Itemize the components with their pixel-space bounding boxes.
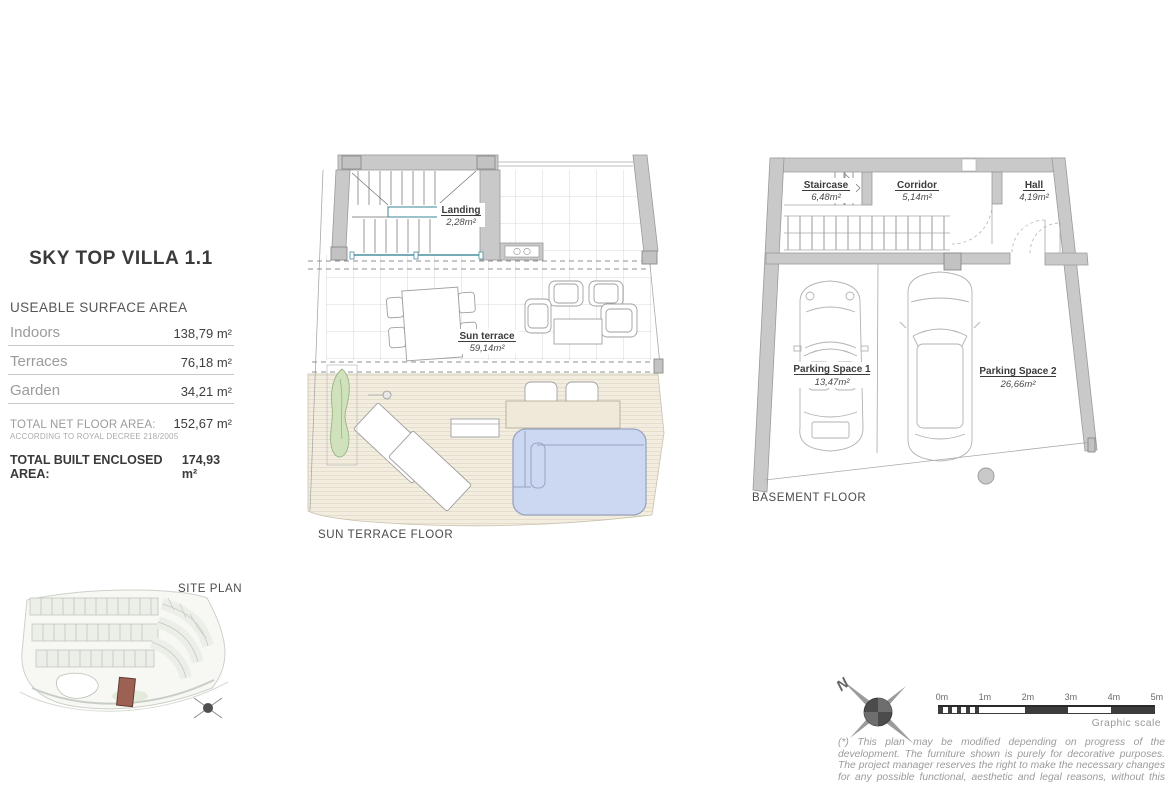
site-compass-icon	[194, 698, 222, 718]
svg-text:Hall: Hall	[1025, 180, 1044, 191]
stair-flight-band	[784, 216, 950, 250]
top-wall	[338, 155, 498, 170]
svg-text:59,14m²: 59,14m²	[470, 343, 506, 354]
surface-row-indoors: Indoors 138,79 m²	[8, 317, 234, 346]
row-value: 138,79 m²	[173, 326, 232, 341]
wall-opening	[962, 159, 976, 171]
sun-terrace-caption: SUN TERRACE FLOOR	[318, 529, 453, 541]
column	[978, 468, 994, 484]
car-suv	[900, 272, 980, 461]
housing-rows	[30, 598, 158, 667]
svg-text:13,47m²: 13,47m²	[815, 377, 851, 388]
info-panel: SKY TOP VILLA 1.1 USEABLE SURFACE AREA I…	[8, 248, 234, 481]
built-area-value: 174,93 m²	[182, 453, 232, 481]
coffee-table	[554, 319, 602, 344]
row-value: 76,18 m²	[181, 355, 232, 370]
svg-text:Staircase: Staircase	[804, 180, 849, 191]
scale-caption: Graphic scale	[1092, 717, 1161, 729]
pillar	[477, 156, 495, 169]
built-area-line: TOTAL BUILT ENCLOSED AREA: 174,93 m²	[10, 453, 232, 481]
room-label-staircase: Staircase 6,48m²	[796, 178, 856, 203]
row-label: Terraces	[10, 353, 68, 370]
pool	[513, 429, 646, 515]
top-railing	[498, 162, 634, 166]
pond	[56, 673, 98, 698]
scale-tick: 1m	[979, 692, 992, 702]
net-floor-area-line: TOTAL NET FLOOR AREA: 152,67 m²	[10, 416, 232, 431]
right-wall	[1052, 158, 1097, 451]
built-area-label: TOTAL BUILT ENCLOSED AREA:	[10, 453, 182, 481]
svg-text:26,66m²: 26,66m²	[1000, 379, 1037, 390]
driveway-edge	[765, 442, 1092, 480]
hall-wall	[992, 172, 1002, 204]
row-label: Indoors	[10, 324, 60, 341]
doors	[952, 204, 1060, 253]
room-label-sun-terrace: Sun terrace 59,14m²	[455, 329, 519, 354]
step	[451, 419, 499, 437]
pillar	[331, 247, 347, 260]
row-value: 34,21 m²	[181, 384, 232, 399]
svg-text:Landing: Landing	[442, 205, 481, 216]
scale-strip	[938, 705, 1155, 714]
pillar	[642, 251, 657, 264]
net-floor-area-label: TOTAL NET FLOOR AREA:	[10, 419, 156, 431]
pillar	[654, 359, 663, 373]
parking-divider	[877, 264, 878, 453]
left-wall	[753, 158, 784, 492]
page-title: SKY TOP VILLA 1.1	[8, 248, 234, 270]
royal-decree-note: ACCORDING TO ROYAL DECREE 218/2005	[10, 432, 232, 441]
outdoor-counter	[506, 401, 620, 428]
scale-segment	[982, 707, 1025, 713]
disclaimer-note: (*) This plan may be modified depending …	[838, 737, 1165, 783]
room-label-parking1: Parking Space 1 13,47m²	[790, 362, 874, 388]
svg-text:Parking Space 1: Parking Space 1	[793, 364, 871, 375]
garage-wall	[766, 253, 1010, 264]
svg-text:4,19m²: 4,19m²	[1019, 192, 1049, 203]
surface-row-terraces: Terraces 76,18 m²	[8, 346, 234, 375]
dining-table	[402, 287, 463, 361]
basement-caption: BASEMENT FLOOR	[752, 492, 866, 504]
svg-text:Sun terrace: Sun terrace	[459, 331, 514, 342]
svg-text:2,28m²: 2,28m²	[445, 217, 476, 228]
left-wall	[332, 170, 350, 247]
counter-sink	[505, 246, 539, 257]
scale-segment	[939, 707, 982, 713]
north-label: N	[833, 674, 853, 695]
pillar	[944, 253, 961, 270]
surface-row-garden: Garden 34,21 m²	[8, 375, 234, 404]
scale-tick: 0m	[936, 692, 949, 702]
scale-tick: 4m	[1108, 692, 1121, 702]
svg-text:5,14m²: 5,14m²	[902, 192, 932, 203]
tile-area-upper	[498, 170, 645, 255]
scale-segment	[1111, 707, 1154, 713]
pillar	[342, 156, 361, 169]
surface-area-header: USEABLE SURFACE AREA	[10, 300, 234, 315]
room-label-hall: Hall 4,19m²	[1019, 180, 1049, 203]
wall-stub	[1045, 253, 1088, 265]
site-plan	[2, 580, 244, 740]
net-floor-area-value: 152,67 m²	[173, 416, 232, 431]
sun-terrace-floor-plan: Landing 2,28m² Sun terrace 59,14m²	[300, 143, 670, 553]
scale-tick: 5m	[1151, 692, 1164, 702]
scale-segment	[1068, 707, 1111, 713]
room-label-corridor: Corridor 5,14m²	[895, 180, 939, 203]
graphic-scale: 0m 1m 2m 3m 4m 5m Graphic scale	[938, 692, 1163, 734]
highlighted-villa-plot	[117, 677, 136, 707]
svg-text:Corridor: Corridor	[897, 180, 937, 191]
top-wall	[775, 158, 1065, 172]
basement-floor-plan: Staircase 6,48m² Corridor 5,14m² Hall 4,…	[740, 150, 1110, 515]
scale-tick: 2m	[1022, 692, 1035, 702]
svg-text:Parking Space 2: Parking Space 2	[979, 366, 1057, 377]
scale-segment	[1025, 707, 1068, 713]
stair-landing-bar	[388, 207, 438, 217]
scale-tick: 3m	[1065, 692, 1078, 702]
row-label: Garden	[10, 382, 60, 399]
room-label-parking2: Parking Space 2 26,66m²	[979, 366, 1057, 390]
svg-text:6,48m²: 6,48m²	[811, 192, 841, 203]
pillar	[1088, 438, 1095, 452]
room-label-landing: Landing 2,28m²	[437, 203, 485, 228]
